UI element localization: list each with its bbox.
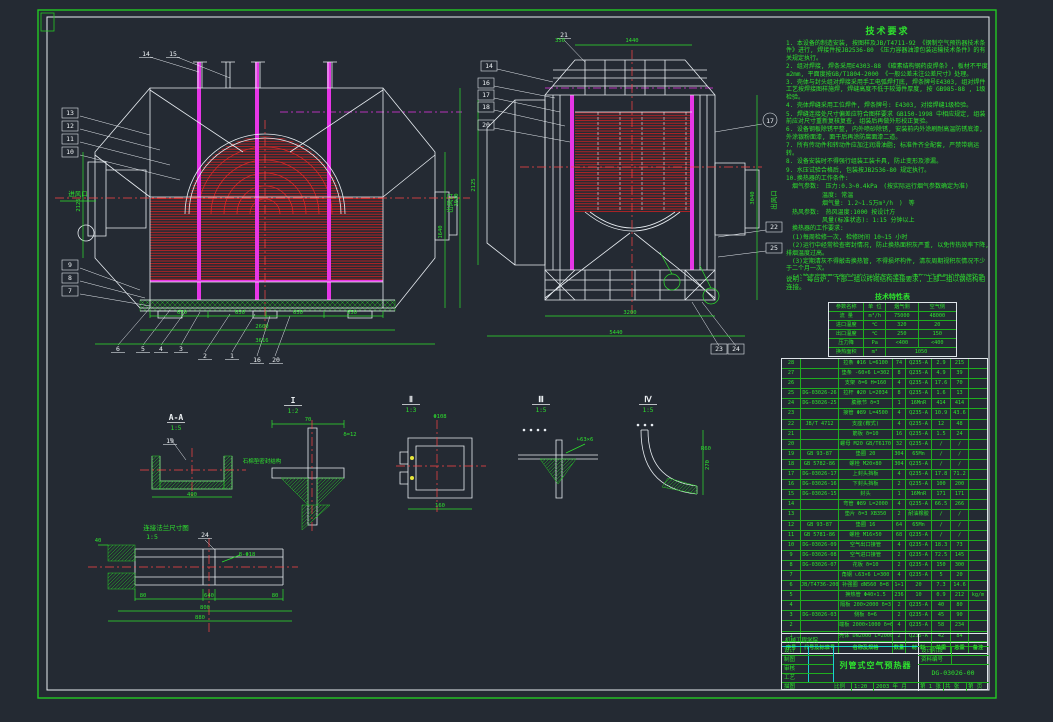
cad-sheet: 1415131211109876543211620192421141617182… (0, 0, 1053, 722)
bom-cell: 17 (782, 470, 800, 479)
bom-cell: Q235-A (905, 369, 931, 378)
bom-cell: 1 (892, 399, 905, 408)
bom-cell: 72.5 (931, 551, 950, 560)
bom-cell: 8 (782, 561, 800, 570)
bom-row: 14弯管 Φ89 L=20004Q235-A66.5266 (782, 499, 987, 509)
bom-cell: 27 (782, 369, 800, 378)
bom-cell: ∕ (950, 510, 968, 519)
bom-cell: JB/T 4712 (800, 420, 838, 429)
bom-cell: 膨胀节 δ=3 (838, 399, 892, 408)
bom-cell: 4 (892, 541, 905, 550)
bom-cell: JB/T4736-2002 (800, 581, 838, 590)
bom-cell: Q235-A (905, 359, 931, 368)
dimension-text: 5440 (609, 330, 622, 336)
bom-cell: Q235-A (905, 571, 931, 580)
bom-cell: ∕ (931, 531, 950, 540)
dimension-text: 650 (177, 310, 187, 316)
dimension-text: 8-Φ18 (239, 552, 256, 558)
bom-cell: kg/m (968, 591, 987, 600)
bom-cell: 13 (782, 510, 800, 519)
bom-cell: 3 (782, 611, 800, 620)
bom-cell: 螺栓 M20×80 (838, 460, 892, 469)
view-label: 出风口 (445, 193, 454, 213)
balloon-number: 20 (272, 356, 280, 364)
sheet-cell-1: 第 1 张 (920, 683, 942, 691)
balloon-number: 16 (482, 79, 490, 87)
section-mark-scale: 1:2 (288, 408, 299, 415)
bom-cell: DG-03026-03 (800, 611, 838, 620)
bom-cell: 4 (892, 571, 905, 580)
dimension-text: 1440 (625, 38, 638, 44)
bom-cell: Q235-A (905, 470, 931, 479)
tech-requirement-line: 6. 设备钢板除锈平整, 内外喷砂除锈, 安装前内外涂刷耐高温防锈底漆, 外涂银… (786, 126, 989, 141)
char-table-cell: 出口温度 (829, 330, 863, 338)
tech-requirement-line: 热风参数: 热风温度:1000 按设计方 (786, 209, 989, 216)
bom-cell: 300 (950, 561, 968, 570)
bom-cell: ∕ (931, 440, 950, 449)
char-table-cell: ℃ (863, 330, 885, 338)
bom-cell (968, 409, 987, 418)
bom-row: 21筋板 δ=1016Q235-A1.524 (782, 429, 987, 439)
balloon-number: 12 (66, 122, 74, 130)
balloon-number: 20 (482, 121, 490, 129)
bom-cell: 17.8 (931, 470, 950, 479)
bom-cell: 7.3 (931, 581, 950, 590)
bom-cell: ∕ (950, 440, 968, 449)
bom-cell: 1 (892, 490, 905, 499)
bom-cell: Q235-A (905, 611, 931, 620)
bom-cell: DG-03026-25 (800, 399, 838, 408)
bom-cell: DG-03026-26 (800, 389, 838, 398)
bom-cell (800, 500, 838, 509)
bom-cell: 28 (782, 359, 800, 368)
bom-cell: ∕ (931, 450, 950, 459)
bom-cell: 10 (905, 591, 931, 600)
bom-cell: 32 (892, 440, 905, 449)
bom-cell: 414 (950, 399, 968, 408)
balloon-number: 14 (142, 50, 150, 58)
view-label: 石棉垫密封结构 (243, 457, 282, 465)
char-table-cell: 空气侧 (918, 303, 956, 311)
bom-cell: 2 (892, 480, 905, 489)
bom-cell: ∕ (950, 450, 968, 459)
bom-cell: 封头 (838, 490, 892, 499)
title-block: 机械工程学院 设计 制图 审核 工艺 列管式空气预热器 设计阶段 资料编号 DG… (781, 633, 988, 690)
dimension-text: 640 (204, 593, 214, 599)
balloon-number: 1 (230, 352, 234, 360)
balloon-number: 19 (166, 437, 174, 445)
bom-cell: 支架 δ=6 H=160 (838, 379, 892, 388)
bom-cell: GB 93-87 (800, 450, 838, 459)
tech-requirement-line: 换热器的工作要求: (786, 225, 989, 232)
bom-cell: GB 5781-86 (800, 531, 838, 540)
char-table-cell: m² (863, 348, 885, 356)
bom-cell: 4 (892, 470, 905, 479)
bom-cell: 5 (782, 591, 800, 600)
bom-cell: ∕ (931, 521, 950, 530)
detail-hatches (108, 456, 697, 589)
bom-cell (968, 611, 987, 620)
bom-cell (968, 420, 987, 429)
balloon-number: 17 (766, 117, 774, 125)
balloon-number: 23 (715, 345, 723, 353)
bom-cell (968, 521, 987, 530)
bom-cell: 1.6 (931, 389, 950, 398)
char-table-cell: 48000 (918, 312, 956, 320)
balloon-number: 16 (253, 356, 261, 364)
bom-row: 26支架 δ=6 H=1604Q235-A17.670 (782, 378, 987, 388)
bom-cell (968, 621, 987, 630)
bom-cell (800, 409, 838, 418)
bom-cell: 150 (931, 561, 950, 570)
bom-cell: GB 5782-86 (800, 460, 838, 469)
bom-cell: DG-03026-07 (800, 561, 838, 570)
bom-cell: 43.6 (950, 409, 968, 418)
bom-row: 19GB 93-87垫圈 2030465Mn∕∕ (782, 449, 987, 459)
bom-row: 8DG-03026-07花板 δ=102Q235-A150300 (782, 560, 987, 570)
bom-cell: Q235-A (905, 500, 931, 509)
bom-cell: 花板 δ=10 (838, 561, 892, 570)
char-table-cell: <400 (918, 339, 956, 347)
bom-cell (968, 379, 987, 388)
tech-requirement-line: 8. 设备安装时不得强行组装工装卡具, 防止变形及渗漏。 (786, 158, 989, 165)
bom-cell (800, 440, 838, 449)
bom-cell (968, 450, 987, 459)
dimension-text: 40 (95, 538, 102, 544)
bom-cell: 17.6 (931, 379, 950, 388)
bom-cell: 4 (782, 601, 800, 610)
dimension-text: 3616 (255, 338, 268, 344)
bom-cell: 垫片 δ=3 XB350 (838, 510, 892, 519)
balloon-number: 17 (482, 91, 490, 99)
balloon-number: 22 (770, 223, 778, 231)
bom-cell (800, 430, 838, 439)
dimension-text: 400 (187, 492, 197, 498)
bom-cell: 25 (782, 389, 800, 398)
bom-cell (968, 389, 987, 398)
balloon-number: 24 (732, 345, 740, 353)
bom-cell: 21 (782, 430, 800, 439)
bom-cell: DG-03026-17 (800, 470, 838, 479)
bom-cell: 14.6 (950, 581, 968, 590)
title-block-role: 制图 (784, 656, 808, 665)
bom-cell: 垫条 -60×6 L=302 (838, 369, 892, 378)
bom-row: 5换热管 Φ40×1.5236100.9212kg/m (782, 590, 987, 600)
dimension-text: δ=12 (343, 432, 356, 438)
bom-row: 12GB 93-87垫圈 166465Mn∕∕ (782, 520, 987, 530)
bom-cell: 8 (892, 389, 905, 398)
balloon-number: 15 (169, 50, 177, 58)
bom-cell: 73 (950, 541, 968, 550)
bom-cell: 65Mn (905, 521, 931, 530)
char-table-cell: 单 位 (863, 303, 885, 311)
bom-cell: 螺母 M20 GB/T6170 (838, 440, 892, 449)
bom-cell: 换热管 Φ40×1.5 (838, 591, 892, 600)
bom-cell: Q235-A (905, 389, 931, 398)
char-table-cell: Pa (863, 339, 885, 347)
bom-cell: 45 (931, 611, 950, 620)
bom-cell: 7 (782, 571, 800, 580)
balloon-number: 25 (770, 244, 778, 252)
bom-cell (968, 510, 987, 519)
dimension-text: 350 (555, 38, 565, 44)
bom-row: 22JB/T 4712支座(鞍式)4Q235-A1248 (782, 419, 987, 429)
tech-requirement-line: 5. 焊缝连接处尺寸偏差应符合图样要求 GB150-1998 中相应规定, 组装… (786, 111, 989, 126)
dimension-text: Φ108 (433, 414, 446, 420)
title-block-company: 机械工程学院 (785, 636, 915, 646)
tech-requirement-line: 2. 组对焊接, 焊条采用E4303-88 《碳素结构钢药皮焊条》, 板材不平度… (786, 63, 989, 78)
bom-cell: 171 (950, 490, 968, 499)
bom-cell: 4 (892, 409, 905, 418)
bom-cell (968, 430, 987, 439)
balloon-number: 3 (179, 345, 183, 353)
dimension-text: 880 (195, 615, 205, 621)
bom-cell: 螺栓 M16×50 (838, 531, 892, 540)
bom-cell: 空气出口接管 (838, 541, 892, 550)
bom-cell: 58 (931, 621, 950, 630)
section-mark-scale: 1:3 (406, 407, 417, 414)
bom-cell: 空气进口接管 (838, 551, 892, 560)
bom-cell: 5 (931, 571, 950, 580)
balloon-number: 13 (66, 109, 74, 117)
bom-cell: DG-03026-08 (800, 551, 838, 560)
balloon-number: 5 (141, 345, 145, 353)
bom-cell: 171 (931, 490, 950, 499)
drawing-title: 列管式空气预热器 (833, 647, 918, 683)
char-table-cell: 流 量 (829, 312, 863, 320)
note-line: 说明: 每台炉, 下部二组以砖砌结构连接要求, 上部二组以钢结构相连接。 (786, 276, 991, 291)
bom-cell: 100 (931, 480, 950, 489)
section-mark-label: Ⅳ (644, 395, 652, 404)
bom-cell: 16MnR (905, 490, 931, 499)
bom-cell: 236 (892, 591, 905, 600)
bom-cell: Q235-A (905, 460, 931, 469)
char-table-cell: 换热面积 (829, 348, 863, 356)
bom-cell: DG-03026-09 (800, 541, 838, 550)
bom-cell: 耐油橡胶 (905, 510, 931, 519)
bom-cell: 15 (782, 490, 800, 499)
char-table-cell: 进口温度 (829, 321, 863, 329)
dimension-text: 160 (435, 503, 445, 509)
bom-row: 10DG-03026-09空气出口接管4Q235-A18.373 (782, 540, 987, 550)
bom-row: 7角钢 ∟63×6 L=3004Q235-A520 (782, 570, 987, 580)
technical-requirements-block: 技术要求 1. 本设备的制造安装, 按图样及JB/T4711-92 《钢制空气预… (786, 24, 989, 276)
char-table-cell: m³/h (863, 312, 885, 320)
bom-cell: 74 (892, 359, 905, 368)
view-label: 出风口 (769, 190, 778, 210)
technical-requirements-title: 技术要求 (786, 24, 989, 37)
char-table-cell: 1050 (885, 348, 956, 356)
bom-row: 23接管 Φ89 L=45004Q235-A10.943.6 (782, 408, 987, 418)
bom-cell: 18 (782, 460, 800, 469)
bom-cell: 20 (782, 440, 800, 449)
magenta-centerlines (280, 88, 715, 112)
bom-row: 13垫片 δ=3 XB3502耐油橡胶∕∕ (782, 509, 987, 519)
bom-cell: 角钢 ∟63×6 L=300 (838, 571, 892, 580)
bom-cell: 215 (950, 359, 968, 368)
balloon-number: 11 (66, 135, 74, 143)
dimension-text: 2600 (255, 324, 268, 330)
bom-cell: 下封头挡板 (838, 480, 892, 489)
tech-requirement-line: 烟气参数: 压力:0.3~0.4kPa (按实际运行烟气参数确定为准) (786, 183, 989, 190)
dimension-text: 3040 (750, 191, 756, 204)
char-table-cell: 320 (885, 321, 917, 329)
bom-cell: ∕ (931, 460, 950, 469)
bom-cell: 40 (931, 601, 950, 610)
bom-cell: 20 (950, 571, 968, 580)
bom-cell: 20 (905, 581, 931, 590)
balloon-number: 7 (68, 287, 72, 295)
bom-cell: Q235-A (905, 541, 931, 550)
bom-row: 27垫条 -60×6 L=3028Q235-A4.939 (782, 368, 987, 378)
tb-bottom-left: 描图 (784, 683, 806, 691)
bom-cell: Q235-A (905, 551, 931, 560)
dimension-text: 650 (235, 310, 245, 316)
bom-cell: 48 (950, 420, 968, 429)
section-mark-scale: 1:5 (536, 407, 547, 414)
bom-cell: 2 (892, 510, 905, 519)
bom-cell: 隔板 200×2000 δ=3 (838, 601, 892, 610)
bom-cell: Q235-A (905, 379, 931, 388)
bom-cell: 0.9 (931, 591, 950, 600)
bom-cell: 234 (950, 621, 968, 630)
bom-cell (968, 470, 987, 479)
sheet-cell-2: 共 张 (945, 683, 965, 691)
bom-cell (968, 359, 987, 368)
bom-cell: 12 (782, 521, 800, 530)
bom-cell: Q235-A (905, 440, 931, 449)
bom-cell: ∕ (950, 460, 968, 469)
balloon-number: 10 (66, 148, 74, 156)
bom-row: 25DG-03026-26拉杆 Φ20 L=20348Q235-A1.613 (782, 388, 987, 398)
bom-cell: 9 (782, 551, 800, 560)
bom-cell (968, 581, 987, 590)
bom-cell: 64 (892, 521, 905, 530)
bom-cell: 71.2 (950, 470, 968, 479)
bom-cell: 24 (782, 399, 800, 408)
bom-cell: 14 (782, 500, 800, 509)
dimension-text: 3040 (454, 193, 460, 206)
view-label: 进风口 (68, 190, 88, 198)
tech-requirement-line: 1. 本设备的制造安装, 按图样及JB/T4711-92 《钢制空气预热器技术条… (786, 40, 989, 62)
tube-bundle-hatch (150, 112, 692, 281)
bom-cell: Q235-A (905, 420, 931, 429)
bom-cell: ∕ (931, 510, 950, 519)
balloon-number: 8 (68, 274, 72, 282)
bom-cell (968, 551, 987, 560)
bom-cell: 接管 Φ89 L=4500 (838, 409, 892, 418)
scale-label: 比例 (834, 683, 850, 691)
bom-cell: 2 (892, 561, 905, 570)
dimension-text: 650 (347, 310, 357, 316)
bom-cell: 4 (892, 420, 905, 429)
bom-row: 17DG-03026-17上封头挡板4Q235-A17.871.2 (782, 469, 987, 479)
bom-cell: 11 (782, 531, 800, 540)
bom-cell (800, 359, 838, 368)
bom-cell: 13 (950, 389, 968, 398)
bom-row: 24DG-03026-25膨胀节 δ=3116MnR414414 (782, 398, 987, 408)
tech-requirement-line: 温度: 常温 (786, 192, 989, 199)
bom-cell: Q235-A (905, 531, 931, 540)
section-mark-scale: 1:5 (171, 425, 182, 432)
bom-cell: 2 (782, 621, 800, 630)
bom-cell: 垫圈 16 (838, 521, 892, 530)
bom-row: 3DG-03026-03侧板 δ=62Q235-A4590 (782, 610, 987, 620)
dimension-text: 1640 (438, 225, 444, 238)
bom-cell (968, 531, 987, 540)
bom-cell (968, 541, 987, 550)
bom-cell (968, 480, 987, 489)
bom-cell: 66.5 (931, 500, 950, 509)
balloon-number: 9 (68, 261, 72, 269)
bom-cell: 2 (892, 611, 905, 620)
bom-row: 16DG-03026-16下封头挡板2Q235-A100200 (782, 479, 987, 489)
bom-cell: 垫圈 20 (838, 450, 892, 459)
tech-requirement-line: 9. 水压试验合格后, 包装按JB2536-80 规定执行。 (786, 167, 989, 174)
bom-cell: 拉杆 Φ20 L=2034 (838, 389, 892, 398)
section-mark-label: I (291, 396, 296, 405)
bom-cell (968, 500, 987, 509)
char-table-cell: 20 (918, 321, 956, 329)
bom-cell: 16 (782, 480, 800, 489)
bom-cell (968, 490, 987, 499)
bom-cell: Q235-A (905, 621, 931, 630)
bom-cell: 10 (782, 541, 800, 550)
dimension-text: 800 (200, 605, 210, 611)
bom-row: 6JB/T4736-2002补强圈 dN560 δ=81+1207.314.6 (782, 580, 987, 590)
bom-cell: 23 (782, 409, 800, 418)
bom-cell (800, 379, 838, 388)
bom-cell: 80 (950, 601, 968, 610)
bom-row: 11GB 5781-86螺栓 M16×5068Q235-A∕∕ (782, 530, 987, 540)
dimension-text: 2125 (76, 198, 82, 211)
bom-cell: 414 (931, 399, 950, 408)
bom-row: 2端板 2000×1000 δ=64Q235-A58234 (782, 620, 987, 630)
bom-cell (968, 561, 987, 570)
bom-cell: 212 (950, 591, 968, 600)
dimension-text: 80 (272, 593, 279, 599)
bom-cell (800, 591, 838, 600)
tech-requirement-line: 10.换热器的工作条件: (786, 175, 989, 182)
section-mark-label: Ⅲ (538, 395, 544, 404)
dimension-text: 3200 (623, 310, 636, 316)
bom-cell: 145 (950, 551, 968, 560)
bom-cell: 200 (950, 480, 968, 489)
tech-requirement-line: 风量(标准状态): 1:15 分钟以上 (786, 217, 989, 224)
bom-cell: Q235-A (905, 601, 931, 610)
tech-requirement-line: 烟气量: 1.2~1.5万m³/h ) 等 (786, 200, 989, 207)
bom-row: 20螺母 M20 GB/T617032Q235-A∕∕ (782, 439, 987, 449)
bom-cell: 19 (782, 450, 800, 459)
bom-cell: 24 (950, 430, 968, 439)
bom-cell: 拉条 Φ16 L=6100 (838, 359, 892, 368)
bom-row: 15DG-03026-15封头116MnR171171 (782, 489, 987, 499)
characteristics-table-title: 技术特性表 (828, 292, 957, 302)
bom-cell (800, 369, 838, 378)
bom-cell: 2 (892, 601, 905, 610)
dimension-text: 80 (140, 593, 147, 599)
balloon-number: 4 (159, 345, 163, 353)
bom-cell: 8 (892, 369, 905, 378)
bom-cell: 65Mn (905, 450, 931, 459)
balloon-number: 24 (201, 531, 209, 539)
char-table-cell: 75000 (885, 312, 917, 320)
bom-cell (968, 460, 987, 469)
bom-cell (800, 601, 838, 610)
view-label: 1:5 (146, 533, 158, 541)
bom-cell (968, 440, 987, 449)
char-table-cell: 250 (885, 330, 917, 338)
